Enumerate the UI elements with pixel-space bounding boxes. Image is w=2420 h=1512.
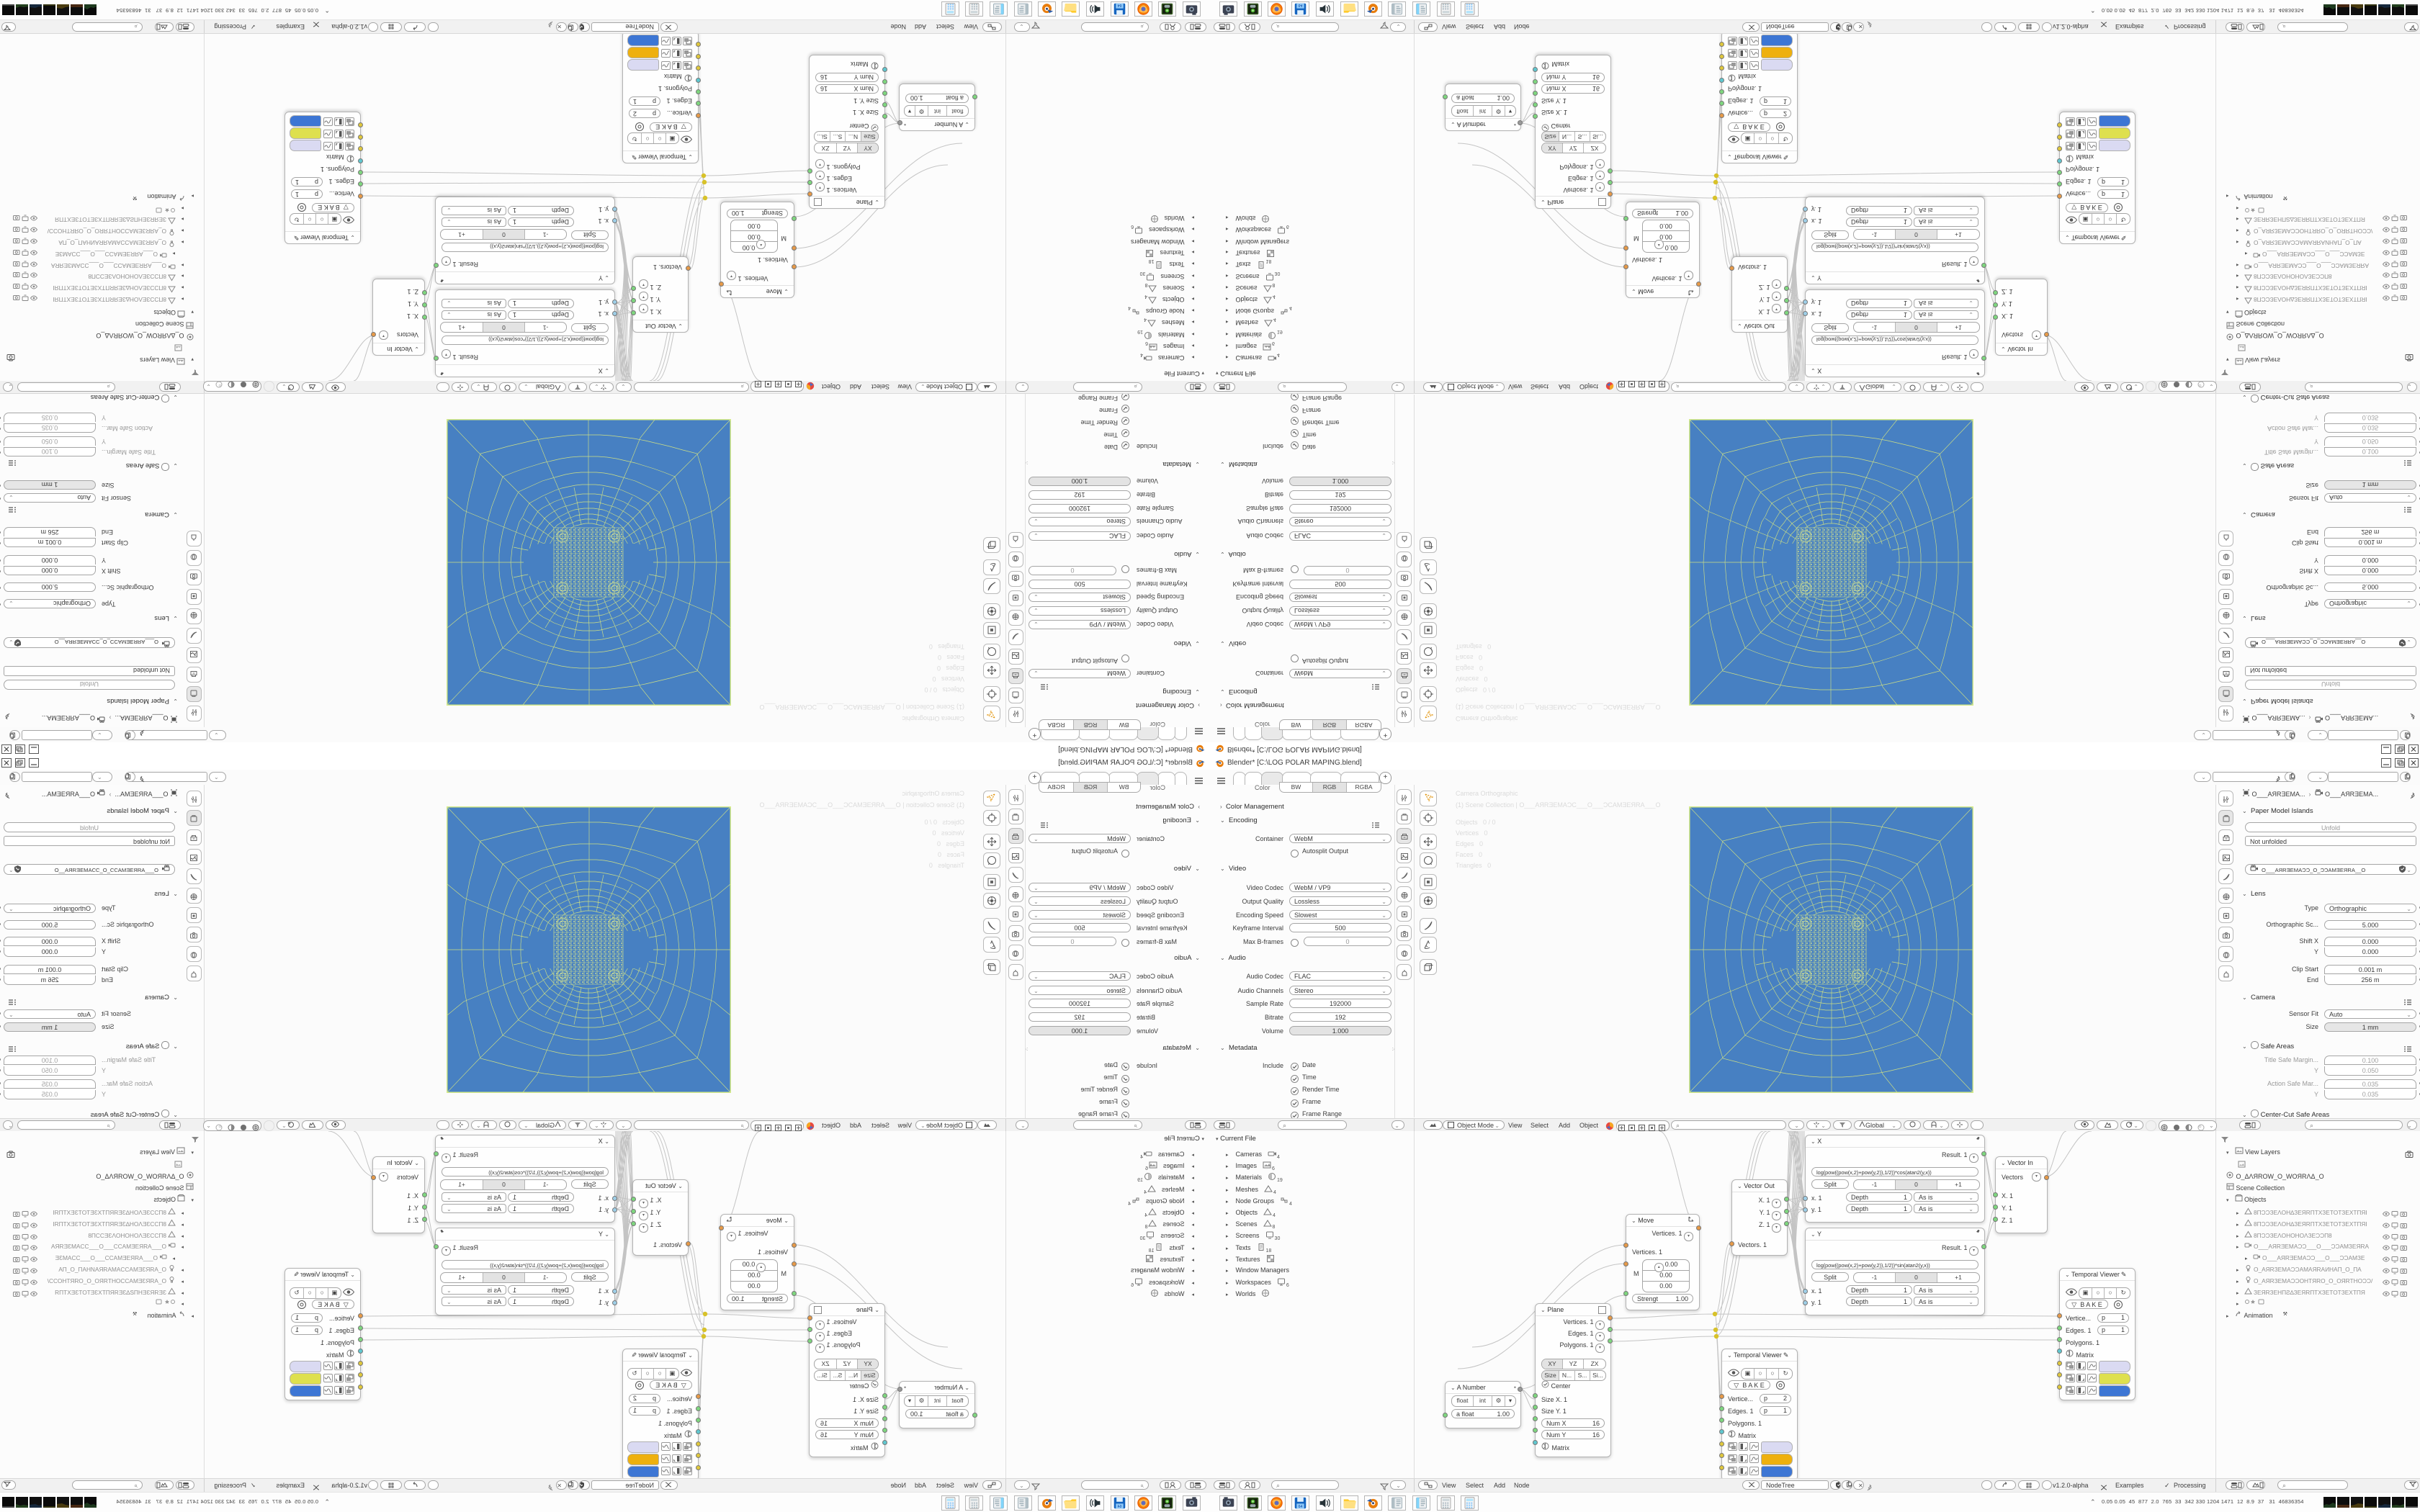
svg-text:64: 64 (1118, 3, 1122, 7)
svg-text:64: 64 (1118, 1505, 1122, 1509)
svg-text:64: 64 (1299, 1505, 1303, 1509)
svg-text:64: 64 (1299, 3, 1303, 7)
